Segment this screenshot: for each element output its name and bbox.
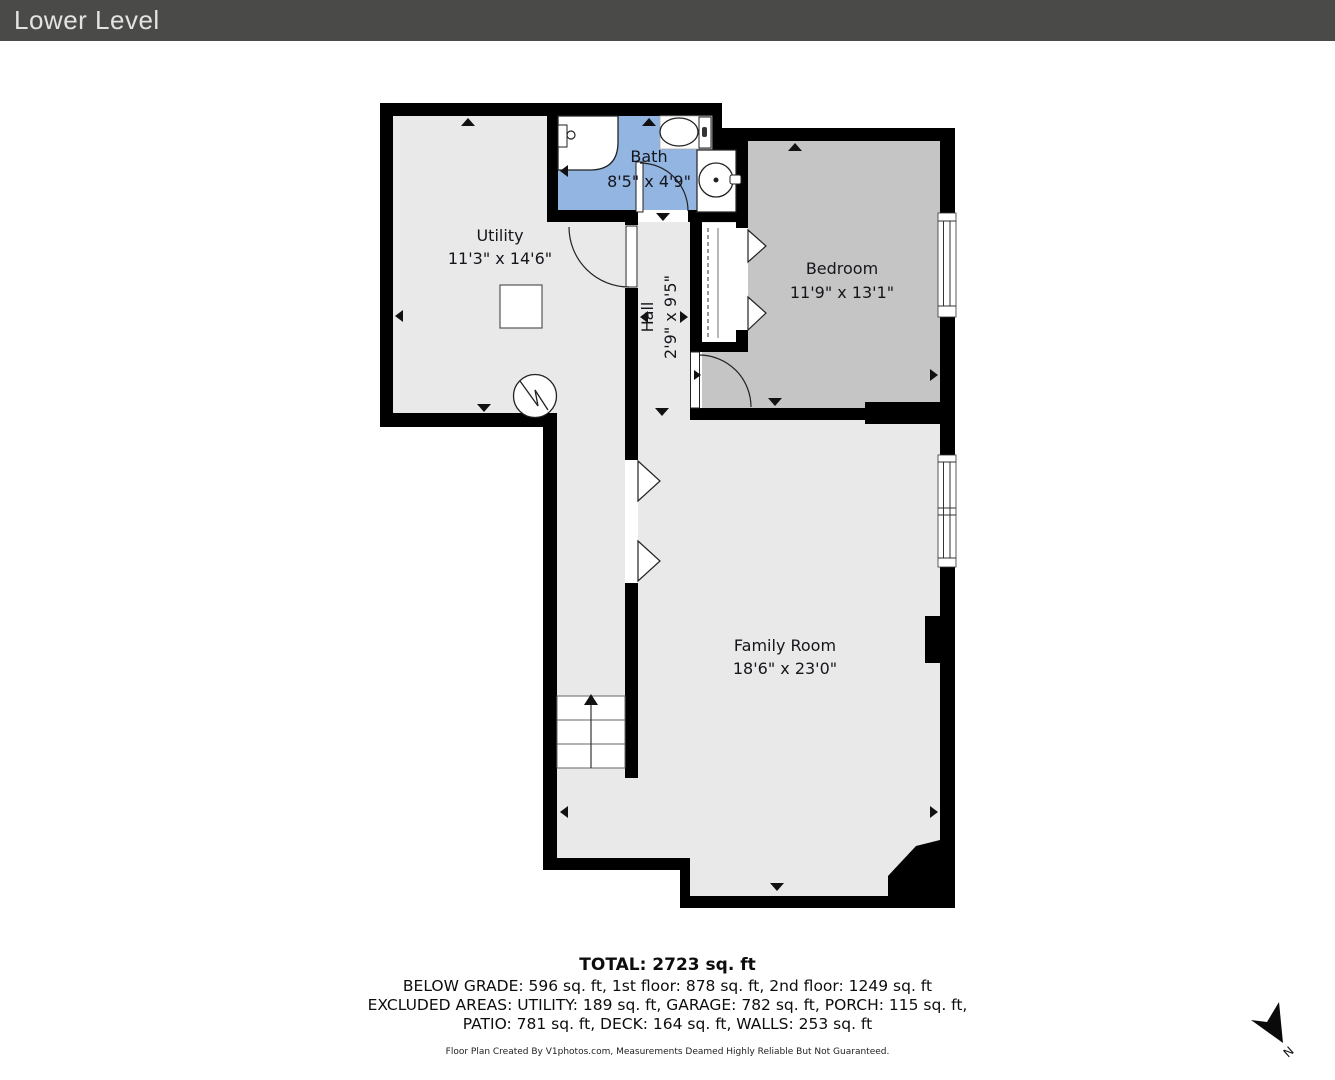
- utility-dimensions: 11'3" x 14'6": [448, 249, 552, 268]
- bedroom-door-leaf: [691, 352, 700, 408]
- hall-dimensions: 2'9" x 9'5": [661, 275, 680, 359]
- excluded-areas-text-2: PATIO: 781 sq. ft, DECK: 164 sq. ft, WAL…: [0, 1015, 1335, 1033]
- utility-label: Utility: [476, 226, 523, 245]
- bedroom-closet-opening: [736, 228, 748, 330]
- bedroom-window: [938, 213, 956, 317]
- total-area-text: TOTAL: 2723 sq. ft: [0, 955, 1335, 975]
- family-room-dimensions: 18'6" x 23'0": [733, 659, 837, 678]
- family-closet-opening: [625, 460, 638, 583]
- sump-pump: [514, 375, 557, 418]
- water-heater: [500, 285, 542, 328]
- sink-drain: [714, 178, 719, 183]
- excluded-areas-text: EXCLUDED AREAS: UTILITY: 189 sq. ft, GAR…: [0, 996, 1335, 1014]
- disclaimer-text: Floor Plan Created By V1photos.com, Meas…: [0, 1047, 1335, 1057]
- bath-label: Bath: [630, 147, 667, 166]
- family-room-label: Family Room: [734, 636, 836, 655]
- toilet-bowl: [660, 118, 698, 146]
- utility-door-leaf: [626, 226, 637, 287]
- shower-head: [567, 131, 575, 139]
- bedroom-dimensions: 11'9" x 13'1": [790, 283, 894, 302]
- family-room-window: [938, 455, 956, 567]
- staircase: [557, 694, 625, 768]
- closet-floor: [702, 223, 736, 342]
- floor-plan-drawing: Bath 8'5" x 4'9" Utility 11'3" x 14'6" B…: [0, 0, 1335, 1080]
- sink-faucet: [730, 175, 741, 184]
- shower-valve: [558, 125, 567, 147]
- toilet-flush: [702, 127, 707, 137]
- floor-plan-page: Lower Level: [0, 0, 1335, 1080]
- bedroom-label: Bedroom: [806, 259, 878, 278]
- hall-label: Hall: [638, 302, 657, 333]
- below-grade-text: BELOW GRADE: 596 sq. ft, 1st floor: 878 …: [0, 977, 1335, 995]
- bath-dimensions: 8'5" x 4'9": [607, 172, 691, 191]
